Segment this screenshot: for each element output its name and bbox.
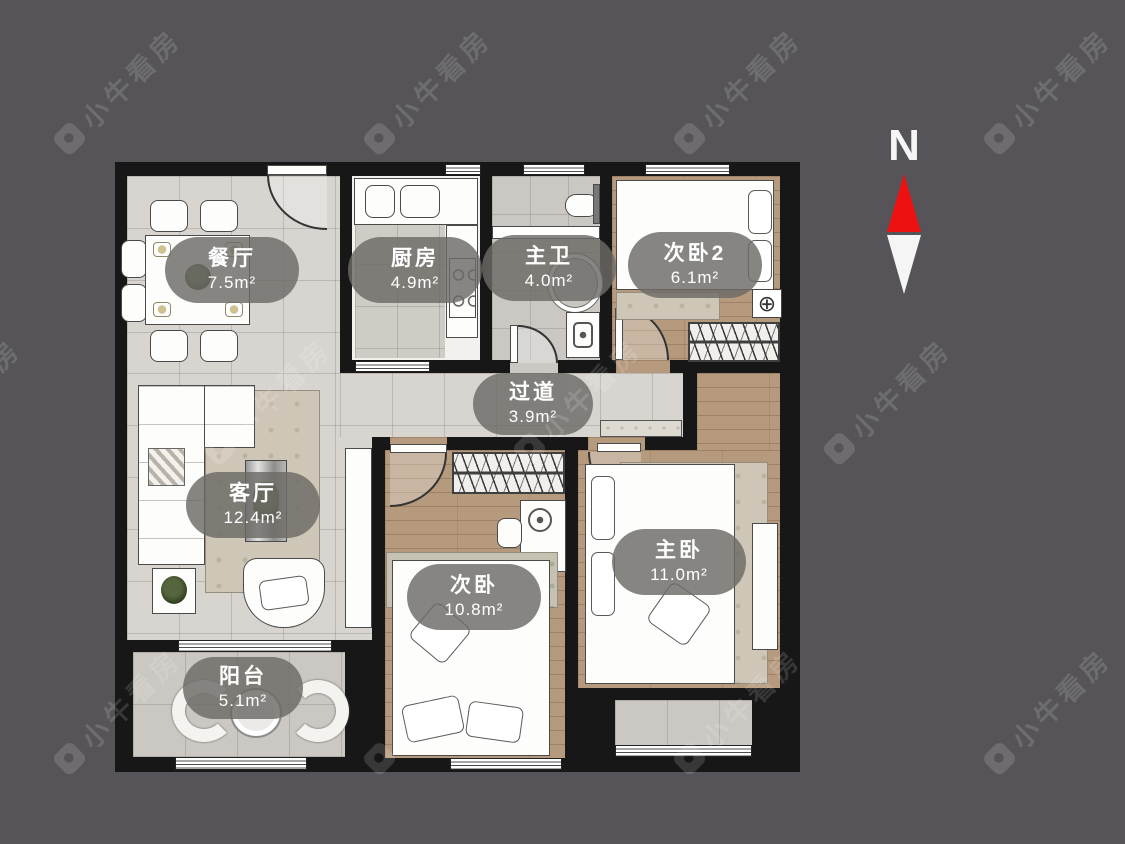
- bedroom-wardrobe: [452, 452, 565, 494]
- living-tall-cabinet: [345, 448, 372, 628]
- window-kitchen: [445, 164, 481, 175]
- plate: [225, 302, 243, 317]
- room-label-living: 客厅 12.4m²: [186, 472, 320, 538]
- floorplan-image: ⊕ 餐: [0, 0, 1125, 844]
- desk-fan: [528, 508, 552, 532]
- room-name: 厨房: [391, 247, 439, 270]
- room-area: 3.9m²: [509, 407, 557, 427]
- room-area: 7.5m²: [208, 273, 256, 293]
- watermark: 小牛看房: [666, 18, 809, 161]
- bedroom-pillow: [465, 700, 524, 743]
- master-balcony-floor: [615, 700, 752, 745]
- plate: [153, 302, 171, 317]
- niu-logo-icon: [361, 120, 398, 157]
- dining-chair: [121, 240, 147, 278]
- side-table: [148, 448, 185, 486]
- niu-logo-icon: [671, 120, 708, 157]
- niu-logo-icon: [51, 120, 88, 157]
- watermark-text: 小牛看房: [1001, 18, 1119, 136]
- dining-chair: [200, 330, 238, 362]
- room-name: 主卫: [525, 245, 573, 268]
- sliding-door-living-balcony: [178, 640, 332, 652]
- room-label-bath: 主卫 4.0m²: [482, 235, 616, 301]
- compass: N: [874, 124, 934, 298]
- room-name: 客厅: [229, 482, 277, 505]
- bath-fixture: [593, 184, 600, 224]
- room-area: 6.1m²: [671, 268, 719, 288]
- room-area: 11.0m²: [650, 565, 708, 585]
- niu-logo-icon: [981, 120, 1018, 157]
- niu-logo-icon: [51, 740, 88, 777]
- niu-logo-icon: [821, 430, 858, 467]
- watermark: 小牛看房: [816, 328, 959, 471]
- room-label-hallway: 过道 3.9m²: [473, 373, 593, 435]
- bedroom-door-leaf: [390, 444, 447, 453]
- window-bedroom: [450, 758, 562, 770]
- room-label-balcony: 阳台 5.1m²: [183, 657, 303, 719]
- room-name: 次卧: [450, 574, 498, 597]
- dining-chair: [150, 330, 188, 362]
- master-door-leaf: [597, 443, 641, 452]
- watermark-text: 小牛看房: [1001, 638, 1119, 756]
- room-area: 4.9m²: [391, 273, 439, 293]
- watermark-text: 小牛看房: [691, 18, 809, 136]
- master-window-seat: [752, 523, 778, 650]
- watermark: 小牛看房: [976, 18, 1119, 161]
- floor-plant: [161, 576, 187, 604]
- watermark: 小牛看房: [46, 18, 189, 161]
- window-bath: [523, 164, 585, 175]
- vanity-basin: [573, 322, 593, 348]
- room-name: 主卧: [655, 539, 703, 562]
- watermark-text: 小牛看房: [0, 328, 29, 446]
- room-label-bedroom2: 次卧2 6.1m²: [628, 232, 762, 298]
- bedroom2-wardrobe: [688, 322, 780, 362]
- window-bedroom2: [645, 164, 730, 175]
- floorplan: ⊕ 餐: [115, 162, 800, 772]
- compass-arrow-icon: [882, 172, 926, 298]
- room-area: 10.8m²: [445, 600, 504, 620]
- ac-glyph: ⊕: [758, 293, 776, 315]
- room-name: 次卧2: [664, 242, 727, 265]
- dining-chair: [121, 284, 147, 322]
- sliding-door-kitchen: [355, 361, 430, 372]
- entry-door-leaf: [267, 165, 327, 175]
- window-balcony: [175, 757, 307, 770]
- room-name: 阳台: [219, 665, 267, 688]
- watermark-text: 小牛看房: [841, 328, 959, 446]
- bath-door-leaf: [510, 325, 518, 363]
- room-name: 餐厅: [208, 247, 256, 270]
- watermark-text: 小牛看房: [71, 18, 189, 136]
- ac-unit-symbol: ⊕: [752, 289, 782, 318]
- watermark: 小牛看房: [976, 638, 1119, 781]
- room-label-master: 主卧 11.0m²: [612, 529, 746, 595]
- room-label-dining: 餐厅 7.5m²: [165, 237, 299, 303]
- compass-north-label: N: [874, 124, 934, 168]
- room-area: 4.0m²: [525, 271, 573, 291]
- room-area: 12.4m²: [224, 508, 283, 528]
- room-area: 5.1m²: [219, 691, 267, 711]
- master-pillow: [591, 476, 615, 540]
- watermark: 小牛看房: [0, 328, 29, 471]
- room-name: 过道: [509, 381, 557, 404]
- kitchen-sink-basin: [365, 185, 395, 218]
- window-master-balcony: [615, 745, 752, 757]
- desk-chair: [497, 518, 522, 548]
- master-entry-nook-floor: [697, 373, 780, 450]
- room-label-bedroom: 次卧 10.8m²: [407, 564, 541, 630]
- watermark: 小牛看房: [356, 18, 499, 161]
- bedroom2-pillow: [748, 190, 772, 234]
- kitchen-sink-basin: [400, 185, 440, 218]
- dining-chair: [150, 200, 188, 232]
- room-label-kitchen: 厨房 4.9m²: [348, 237, 482, 303]
- dining-chair: [200, 200, 238, 232]
- niu-logo-icon: [981, 740, 1018, 777]
- hallway-cabinet: [600, 420, 682, 437]
- doorway-bedroom2: [616, 360, 670, 373]
- watermark-text: 小牛看房: [381, 18, 499, 136]
